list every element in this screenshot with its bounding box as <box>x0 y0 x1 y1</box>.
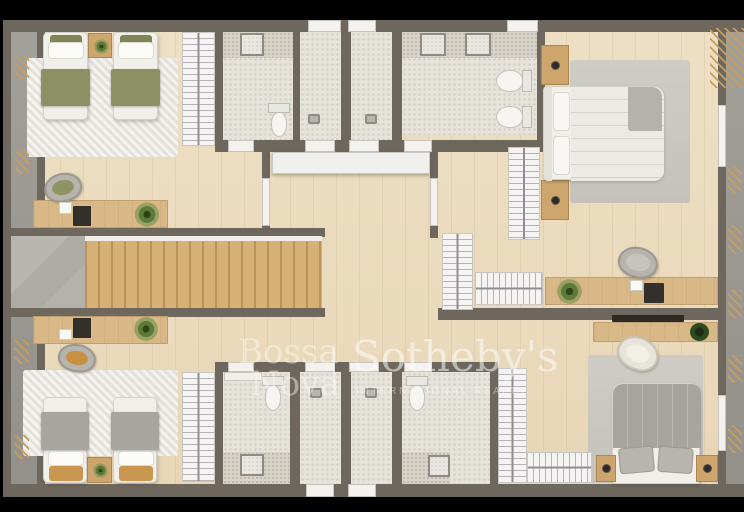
notepad-tl <box>59 202 72 214</box>
notepad-study <box>630 280 643 291</box>
plant-pot <box>94 39 109 54</box>
chair-cushion-green <box>51 178 75 197</box>
wall-left-outer <box>3 20 11 497</box>
lamp <box>602 464 611 473</box>
bidet-tank <box>522 106 532 128</box>
nightstand-bl <box>87 457 112 483</box>
trellis-right-5 <box>728 425 742 453</box>
nightstand-br-left <box>596 455 616 482</box>
exterior-stair-slats <box>710 28 744 88</box>
wardrobe-tl <box>182 32 215 146</box>
wall-bl-bath <box>215 372 223 484</box>
lamp <box>703 464 712 473</box>
window-top-3 <box>507 20 538 32</box>
wall-bath-divider-bottom-1 <box>290 372 300 484</box>
door-bath-top-left <box>228 140 254 152</box>
twin-bed-tl-2 <box>113 32 158 120</box>
tv-br <box>612 315 684 322</box>
chair-cushion-cream <box>623 341 652 367</box>
plant-shelf-br <box>690 323 709 341</box>
shower-tr-1 <box>420 33 446 56</box>
bed-pillow <box>48 451 84 466</box>
plant-pot <box>93 463 108 478</box>
trellis-left-4 <box>15 435 29 459</box>
drain-shower-bottom-a <box>310 388 322 398</box>
door-shower-bottom-a <box>305 362 335 372</box>
trellis-left-1 <box>15 55 29 79</box>
plant-desk-tl <box>134 202 160 227</box>
shower-tl <box>240 33 264 56</box>
double-bed-br <box>612 383 700 484</box>
door-shower-top-a <box>305 140 335 152</box>
drain-shower-top-a <box>308 114 320 124</box>
laptop-tl <box>73 206 91 226</box>
lamp <box>551 61 560 70</box>
double-bed-tr <box>543 86 663 180</box>
door-leaf-hall-left <box>262 178 270 226</box>
notepad-bl <box>59 329 72 340</box>
shower-tr-2 <box>465 33 491 56</box>
wardrobe-br-horizontal <box>527 452 592 483</box>
bed-pillow <box>48 42 84 59</box>
wall-tl-bath <box>215 32 223 140</box>
wall-hall-top <box>215 140 545 152</box>
door-bath-top-right <box>404 140 432 152</box>
wardrobe-tr <box>508 147 540 240</box>
lamp <box>551 196 560 205</box>
door-leaf-hall-right <box>430 178 438 226</box>
toilet-tank <box>522 70 532 92</box>
bed-pillow <box>118 42 154 59</box>
laptop-bl <box>73 318 91 338</box>
wardrobe-br-vertical <box>498 368 527 483</box>
bed-pillow <box>553 136 570 175</box>
nightstand-tr-bottom <box>541 180 569 220</box>
stair-stone-landing <box>11 236 85 308</box>
toilet-bowl <box>271 112 287 137</box>
plant-desk-study <box>556 279 583 304</box>
bed-blanket-green <box>41 69 90 106</box>
laptop-study <box>644 283 664 303</box>
wardrobe-study-horizontal <box>475 272 543 305</box>
shower-room-top-a-floor <box>300 32 341 140</box>
wall-bath-divider-top-3 <box>392 32 402 140</box>
balcony-door-right-bottom <box>718 395 726 451</box>
door-bath-bottom-left <box>228 362 254 372</box>
window-bottom-1 <box>306 484 334 497</box>
chair-cushion <box>625 252 651 273</box>
twin-bed-tl-1 <box>43 32 88 120</box>
bed-pillow <box>553 92 570 131</box>
trellis-right-1 <box>728 165 742 193</box>
trellis-left-2 <box>15 150 29 174</box>
chair-cushion-tan <box>65 349 89 367</box>
bed-blanket-gray <box>628 87 662 131</box>
bed-foot-bench <box>49 466 83 481</box>
window-top-1 <box>308 20 341 32</box>
floorplan-canvas: Bossa Nova Sotheby's INTERNATIONAL REALT… <box>0 0 744 512</box>
bed-blanket-gray <box>41 412 89 450</box>
trellis-left-3 <box>15 340 29 364</box>
wardrobe-bl <box>182 372 215 482</box>
toilet-bowl <box>265 385 281 411</box>
twin-bed-bl-2 <box>113 397 157 483</box>
window-top-2 <box>348 20 376 32</box>
hall-console-cabinet <box>272 152 430 174</box>
wall-bath-divider-top-1 <box>293 32 300 140</box>
vanity-bath-bl <box>224 372 262 381</box>
wardrobe-study-vertical <box>442 233 473 310</box>
shower-br <box>428 455 450 477</box>
bed-pillow <box>118 451 154 466</box>
staircase <box>85 241 322 308</box>
plant-desk-bl <box>133 317 159 341</box>
bed-pillow-gray <box>618 446 655 475</box>
wall-bath-divider-top-2 <box>341 32 351 140</box>
trellis-right-2 <box>728 225 742 253</box>
door-shower-bottom-b <box>349 362 379 372</box>
wall-bath-divider-bottom-3 <box>392 372 402 484</box>
bed-foot-bench <box>119 466 153 481</box>
bed-pillow-gray <box>657 446 694 474</box>
toilet-bowl <box>496 70 523 92</box>
trellis-right-3 <box>728 290 742 318</box>
wall-bath-bedroom-br <box>490 372 498 484</box>
window-bottom-2 <box>348 484 376 497</box>
door-bath-bottom-right <box>404 362 432 372</box>
drain-shower-top-b <box>365 114 377 124</box>
wall-bath-divider-bottom-2 <box>341 372 351 484</box>
door-shower-top-b <box>349 140 379 152</box>
bidet-bowl <box>496 106 523 128</box>
toilet-bowl <box>409 385 425 411</box>
nightstand-tl <box>88 33 112 58</box>
bed-blanket-gray <box>111 412 159 450</box>
bed-blanket-green <box>111 69 160 106</box>
nightstand-br-right <box>696 455 718 482</box>
twin-bed-bl-1 <box>43 397 87 483</box>
drain-shower-bottom-b <box>365 388 377 398</box>
balcony-door-right-top <box>718 105 726 167</box>
bed-duvet-gray <box>613 384 701 448</box>
bed-headboard <box>544 87 552 181</box>
trellis-right-4 <box>728 355 742 383</box>
shower-bl <box>240 454 264 476</box>
nightstand-tr-top <box>541 45 569 85</box>
